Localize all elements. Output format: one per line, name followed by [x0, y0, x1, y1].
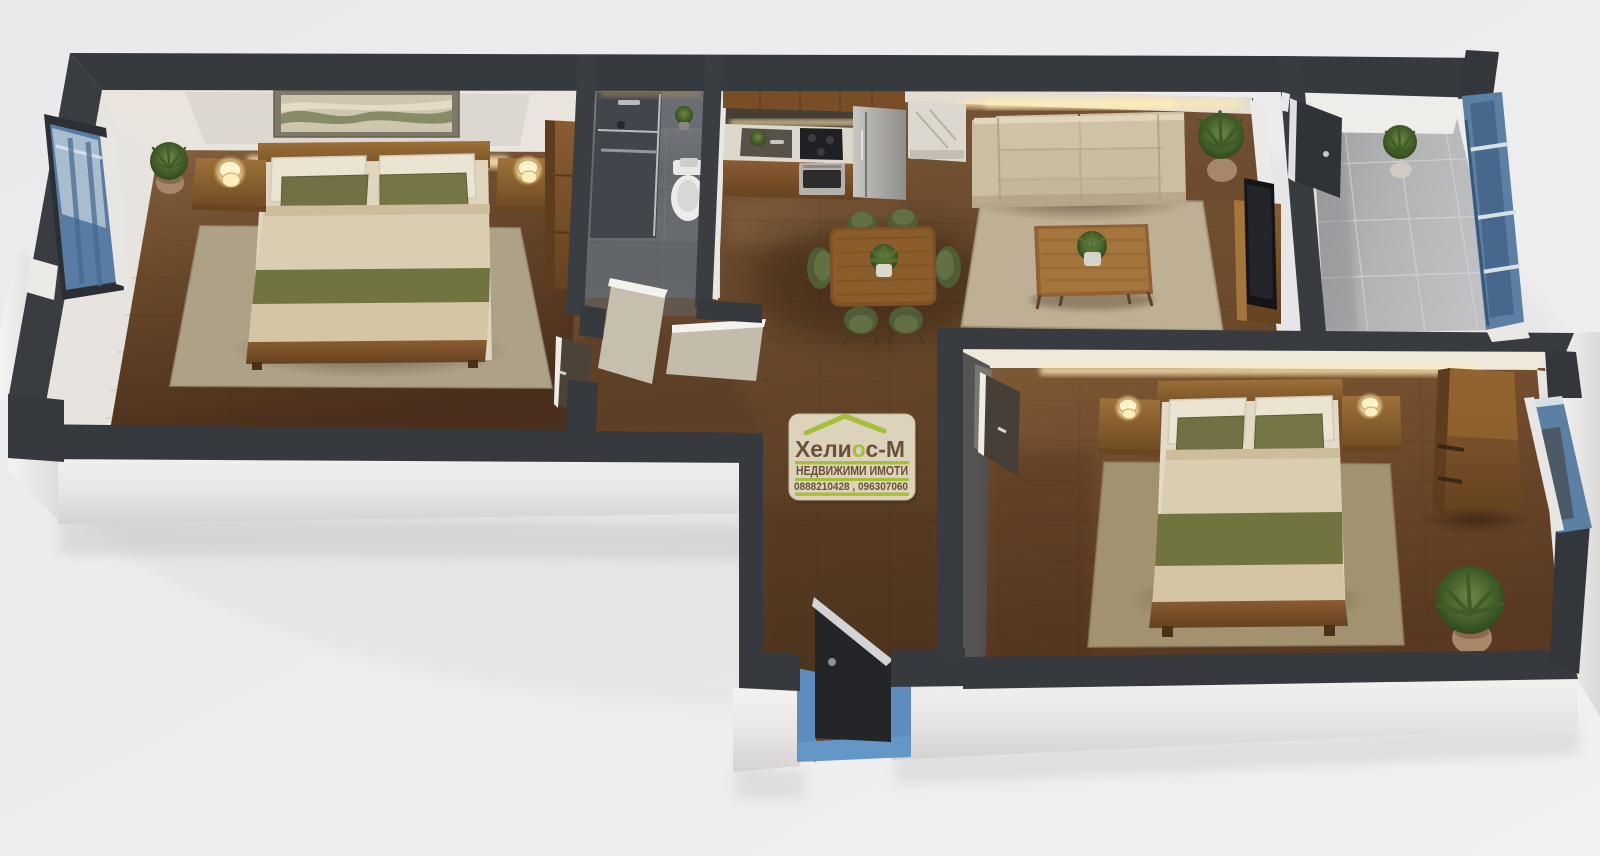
svg-text:НЕДВИЖИМИ ИМОТИ: НЕДВИЖИМИ ИМОТИ — [796, 464, 908, 478]
svg-text:0888210428 , 096307060: 0888210428 , 096307060 — [794, 481, 908, 493]
svg-text:Хелиос-М: Хелиос-М — [795, 436, 905, 462]
